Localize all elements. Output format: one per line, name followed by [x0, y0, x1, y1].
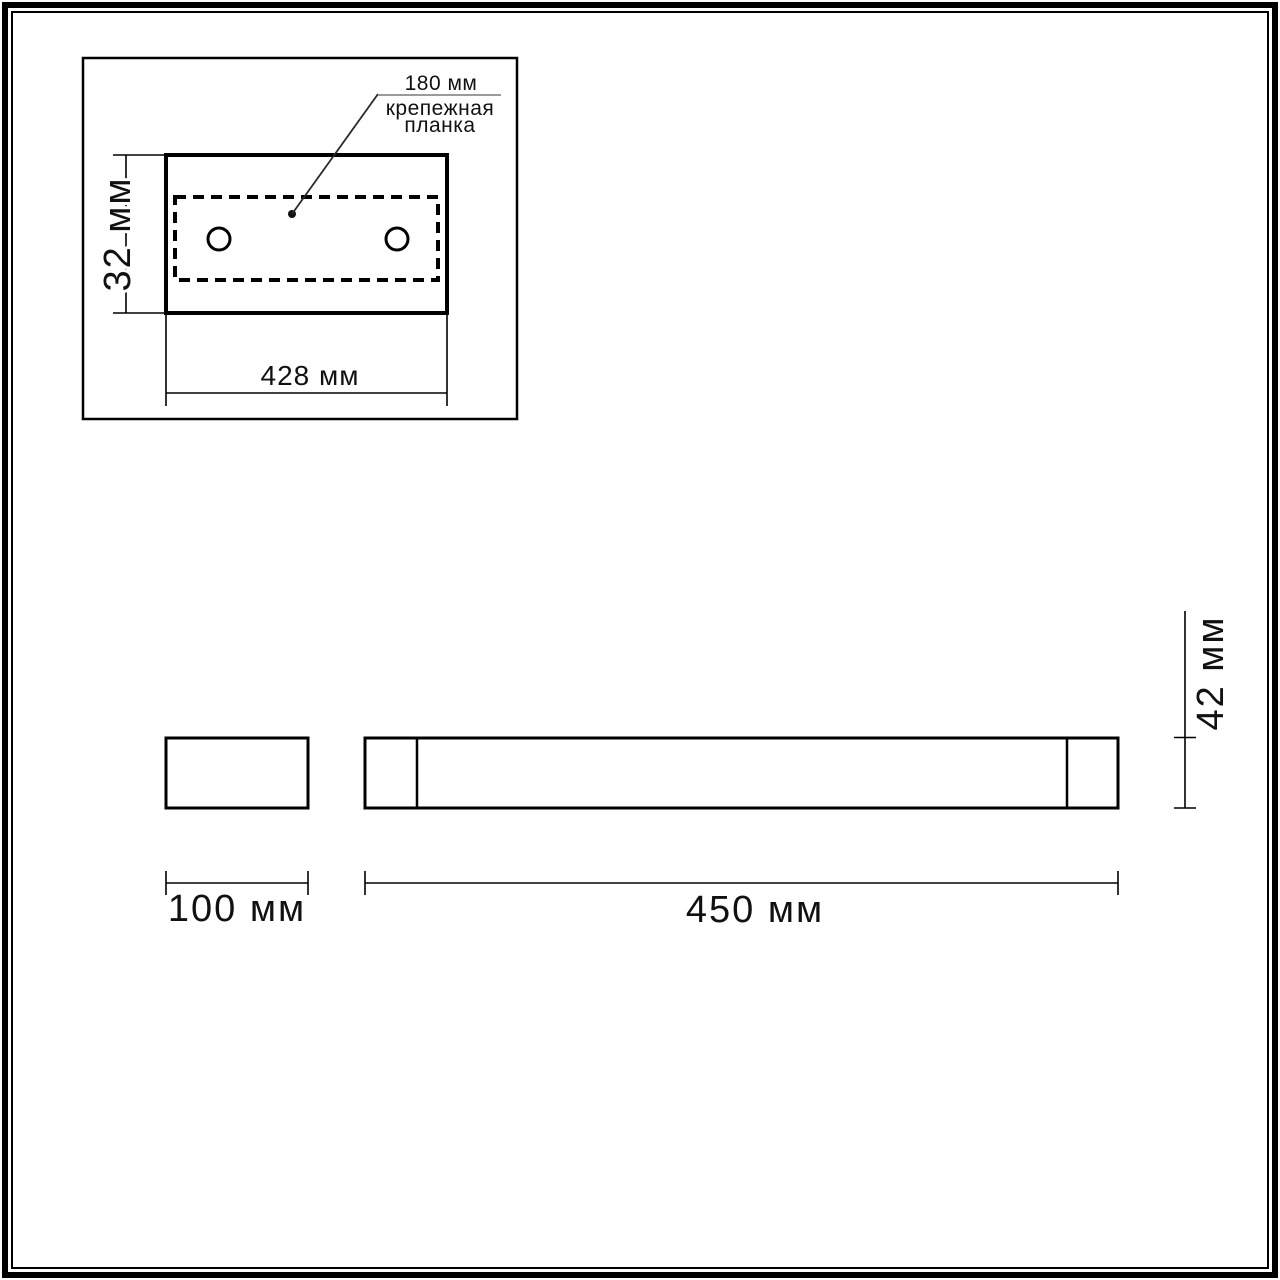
leader-value-label: 180 мм [405, 72, 478, 95]
dim-32-label: 32 мм [97, 176, 139, 291]
leader-name-label-line2: планка [404, 114, 475, 137]
dim-100-label: 100 мм [168, 888, 306, 930]
technical-drawing-page: 180 мм крепежная планка 32 мм 428 мм 42 … [0, 0, 1280, 1280]
dim-42-label: 42 мм [1190, 615, 1232, 730]
dimension-drawing: 180 мм крепежная планка 32 мм 428 мм 42 … [0, 0, 1280, 1280]
dim-450-label: 450 мм [686, 889, 824, 931]
dim-428-label: 428 мм [261, 360, 360, 391]
